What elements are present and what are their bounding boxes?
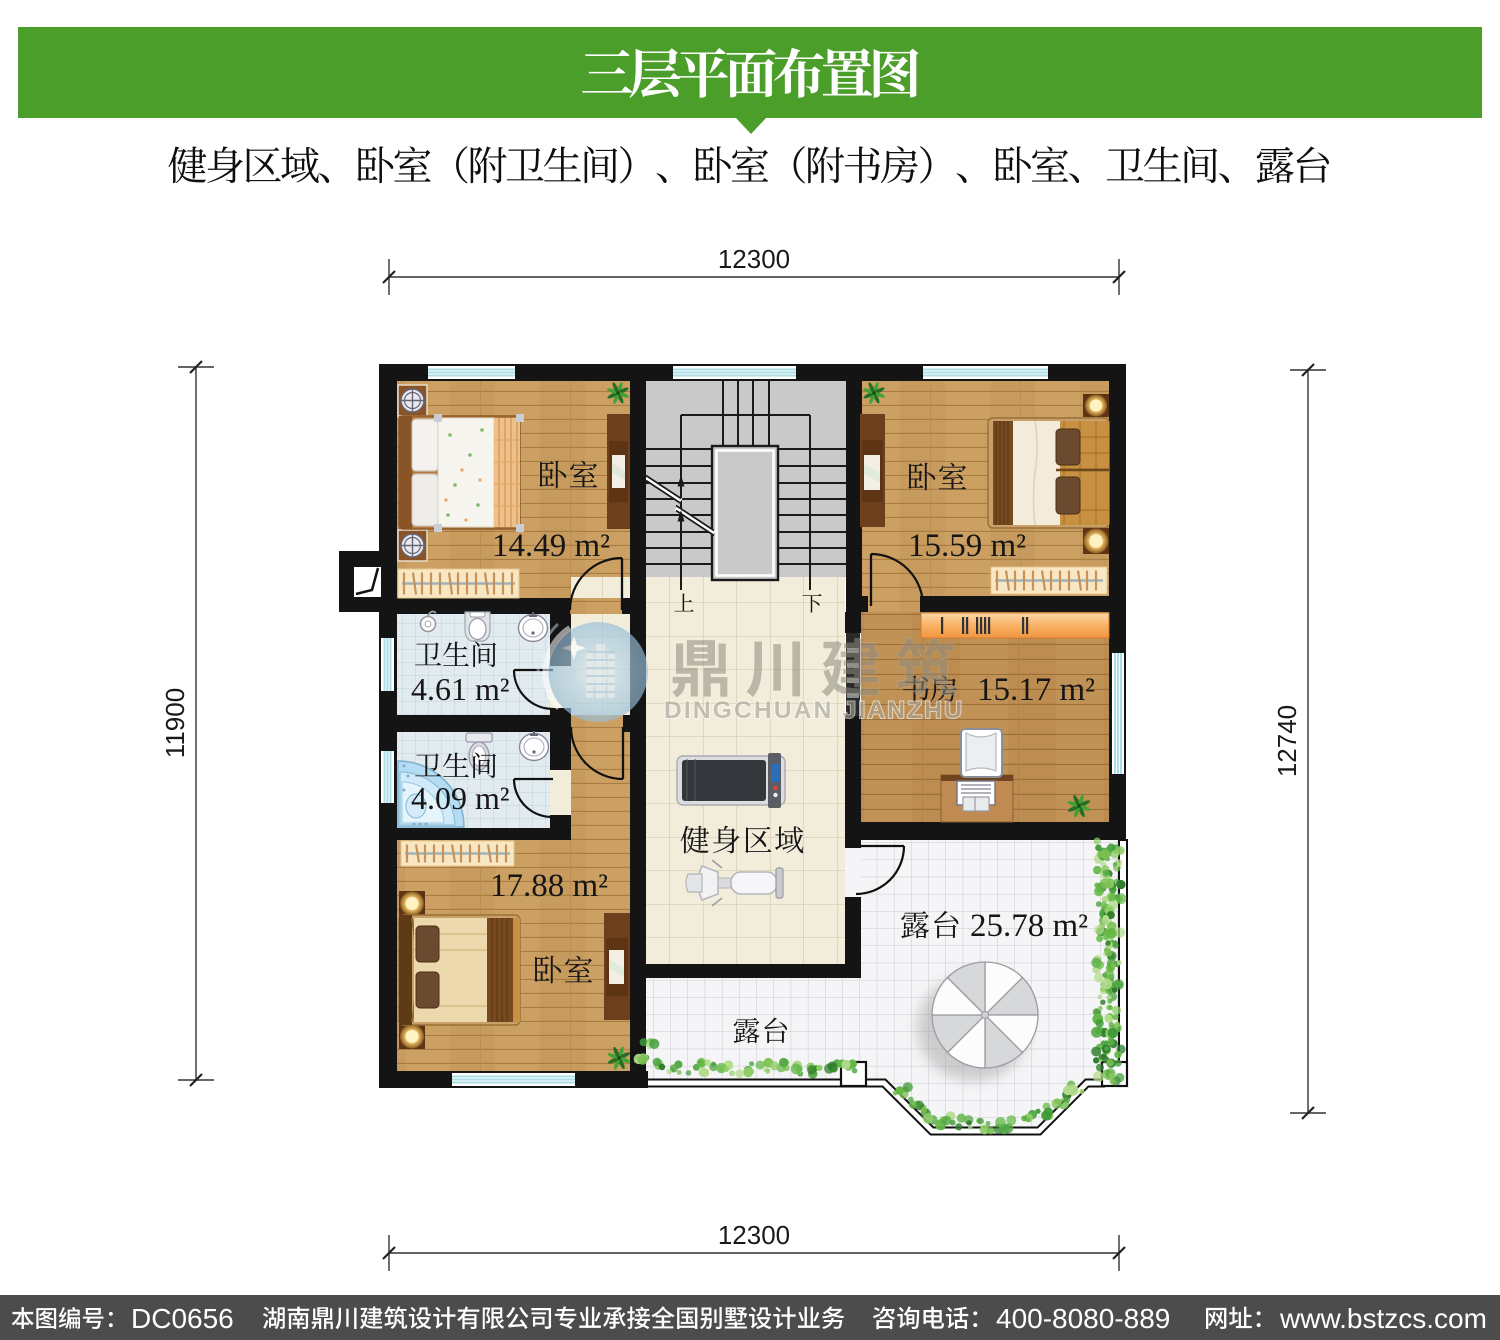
svg-text:11900: 11900 [160,688,190,758]
svg-text:400-8080-889: 400-8080-889 [996,1303,1170,1334]
svg-text:15.17 m²: 15.17 m² [977,672,1095,708]
svg-text:4.61 m²: 4.61 m² [411,671,509,707]
svg-text:DC0656: DC0656 [131,1303,234,1334]
svg-text:4.09 m²: 4.09 m² [411,780,509,816]
svg-text:15.59 m²: 15.59 m² [908,528,1026,564]
svg-text:25.78 m²: 25.78 m² [970,908,1088,944]
svg-text:17.88 m²: 17.88 m² [490,868,608,904]
svg-text:14.49 m²: 14.49 m² [492,528,610,564]
svg-text:12300: 12300 [718,1220,790,1250]
svg-text:12300: 12300 [718,244,790,274]
svg-text:12740: 12740 [1272,705,1302,777]
svg-text:DINGCHUAN JIANZHU: DINGCHUAN JIANZHU [664,697,964,724]
svg-text:www.bstzcs.com: www.bstzcs.com [1279,1303,1487,1334]
